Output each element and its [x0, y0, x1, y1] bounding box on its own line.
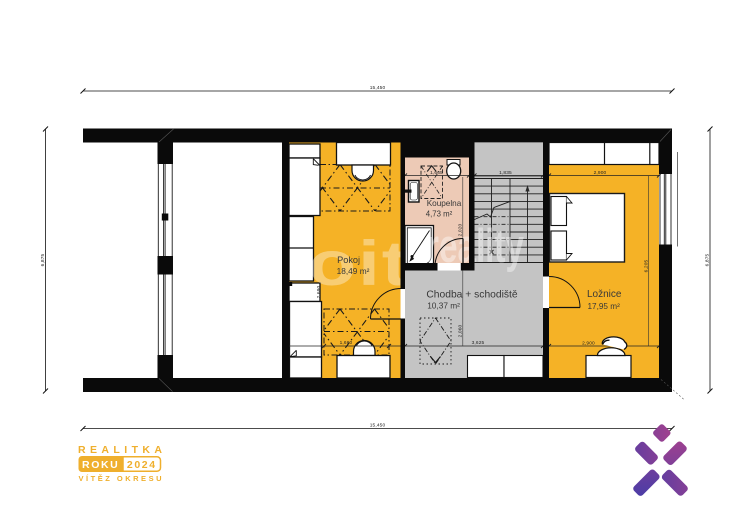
svg-text:6,875: 6,875 [705, 253, 711, 266]
svg-text:10,37 m²: 10,37 m² [427, 301, 460, 311]
svg-text:4,73 m²: 4,73 m² [426, 209, 453, 218]
svg-text:6,875: 6,875 [40, 253, 46, 266]
svg-text:6,205: 6,205 [644, 259, 650, 272]
svg-text:2,690: 2,690 [316, 285, 322, 298]
svg-text:Chodba + schodiště: Chodba + schodiště [426, 290, 518, 301]
svg-text:Koupelna: Koupelna [427, 199, 462, 208]
svg-text:2,060: 2,060 [457, 324, 463, 337]
svg-text:15,450: 15,450 [370, 85, 386, 91]
svg-text:2024: 2024 [127, 459, 157, 471]
svg-text:18,49 m²: 18,49 m² [337, 266, 370, 276]
svg-text:1,835: 1,835 [499, 170, 512, 176]
svg-text:Pokoj: Pokoj [337, 255, 360, 265]
svg-text:3,625: 3,625 [472, 340, 485, 346]
svg-text:15,450: 15,450 [370, 423, 386, 429]
svg-text:ROKU: ROKU [82, 459, 119, 471]
svg-text:1,660: 1,660 [340, 340, 353, 346]
svg-text:Ložnice: Ložnice [587, 289, 622, 300]
svg-text:2,900: 2,900 [582, 340, 595, 346]
svg-text:17,95 m²: 17,95 m² [588, 302, 621, 311]
svg-text:2,900: 2,900 [594, 170, 607, 176]
svg-text:1,665: 1,665 [430, 170, 443, 176]
svg-text:reality: reality [426, 219, 524, 272]
svg-text:2,020: 2,020 [457, 223, 463, 236]
svg-text:VÍTĚZ OKRESU: VÍTĚZ OKRESU [79, 474, 162, 483]
